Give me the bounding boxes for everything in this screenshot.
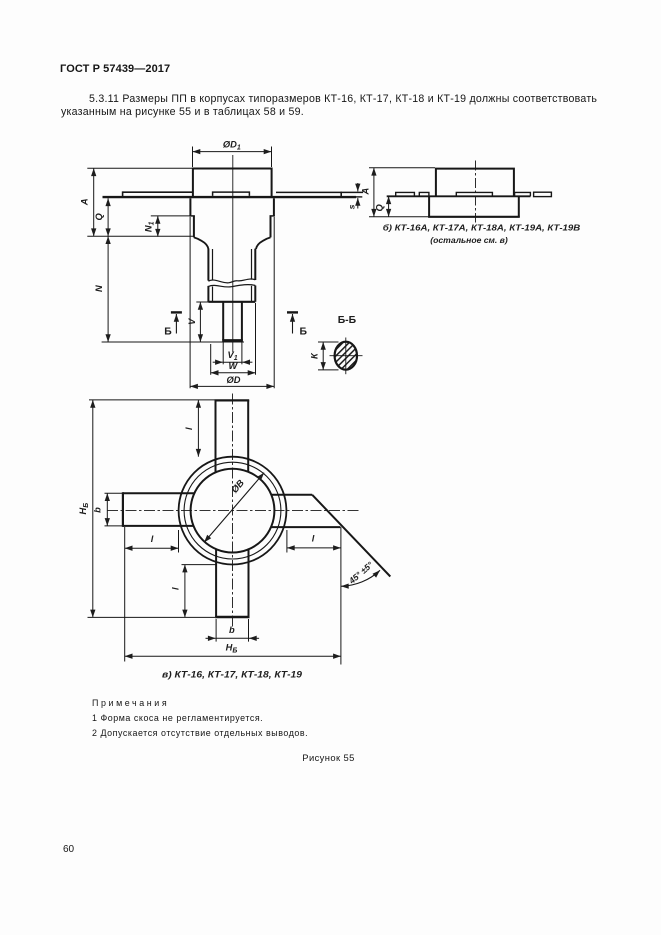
svg-text:(остальное см. в): (остальное см. в) (430, 235, 508, 245)
svg-text:l: l (184, 427, 194, 430)
svg-text:l: l (312, 533, 315, 543)
svg-text:HБ: HБ (226, 643, 238, 655)
svg-text:ØD1: ØD1 (223, 139, 241, 151)
svg-text:s: s (347, 204, 357, 209)
svg-text:Б: Б (299, 327, 307, 338)
svg-text:в) КТ-16, КТ-17, КТ-18, КТ-19: в) КТ-16, КТ-17, КТ-18, КТ-19 (162, 669, 302, 679)
svg-text:N1: N1 (143, 221, 155, 232)
svg-text:Б-Б: Б-Б (338, 315, 357, 326)
svg-text:l: l (171, 587, 181, 590)
svg-text:HБ: HБ (78, 503, 90, 515)
svg-text:b: b (93, 507, 103, 513)
svg-text:N: N (94, 285, 104, 292)
svg-text:ØD: ØD (227, 375, 241, 385)
svg-text:Q: Q (94, 213, 104, 221)
svg-text:б) КТ-16А, КТ-17А, КТ-18А, КТ-: б) КТ-16А, КТ-17А, КТ-18А, КТ-19А, КТ-19… (383, 223, 581, 233)
svg-text:V1: V1 (228, 350, 238, 362)
svg-text:A: A (361, 188, 371, 196)
svg-text:W: W (229, 361, 239, 371)
svg-text:b: b (229, 625, 235, 635)
svg-text:Б: Б (164, 327, 172, 338)
svg-text:A: A (80, 198, 90, 206)
svg-text:Q: Q (375, 204, 385, 212)
svg-text:l: l (151, 534, 154, 544)
svg-text:V: V (187, 318, 197, 325)
svg-text:ØВ: ØВ (229, 478, 246, 495)
svg-text:К: К (310, 352, 320, 359)
